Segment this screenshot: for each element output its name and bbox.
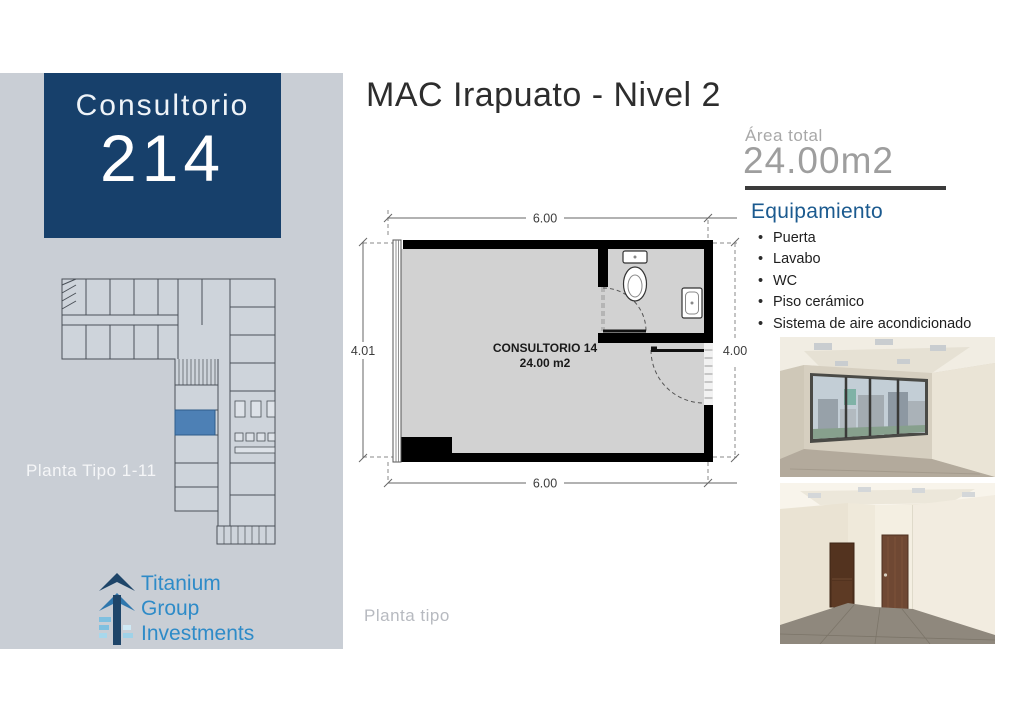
key-plan-caption: Planta Tipo 1-11 bbox=[26, 461, 157, 481]
wall-corner-block bbox=[397, 437, 452, 462]
logo-line-3: Investments bbox=[141, 621, 254, 646]
room-area-label: 24.00 m2 bbox=[520, 356, 571, 370]
dim-left-label: 4.01 bbox=[351, 344, 375, 358]
key-plan-drawing bbox=[52, 273, 322, 553]
plan-caption: Planta tipo bbox=[364, 606, 450, 626]
entry-door-opening bbox=[704, 343, 713, 405]
equipment-item: Sistema de aire acondicionado bbox=[758, 314, 971, 335]
page-title: MAC Irapuato - Nivel 2 bbox=[366, 76, 721, 115]
entry-door-handle bbox=[651, 347, 657, 351]
wall-right-upper bbox=[704, 240, 713, 343]
divider-rule bbox=[745, 186, 946, 190]
company-logo: Titanium Group Investments bbox=[97, 571, 254, 647]
wall-bottom bbox=[452, 453, 713, 462]
wood-door-1 bbox=[830, 543, 854, 607]
unit-badge: Consultorio 214 bbox=[44, 73, 281, 238]
unit-badge-label: Consultorio bbox=[76, 89, 250, 123]
area-total-value: 24.00m2 bbox=[743, 140, 894, 182]
equipment-item: Piso cerámico bbox=[758, 292, 971, 313]
equipment-heading: Equipamiento bbox=[751, 200, 883, 224]
bathroom-bottom-wall bbox=[598, 333, 713, 343]
dim-right-label: 4.00 bbox=[723, 344, 747, 358]
window-left bbox=[393, 240, 401, 462]
equipment-item: Puerta bbox=[758, 228, 971, 249]
company-logo-text: Titanium Group Investments bbox=[141, 571, 254, 646]
toilet-icon bbox=[623, 251, 647, 301]
bathroom-partition-wall bbox=[598, 249, 608, 287]
sink-icon bbox=[682, 288, 702, 318]
titanium-logo-icon bbox=[97, 571, 137, 647]
wall-top bbox=[403, 240, 713, 249]
dim-bottom-label: 6.00 bbox=[533, 477, 557, 491]
equipment-list: Puerta Lavabo WC Piso cerámico Sistema d… bbox=[758, 228, 971, 335]
equipment-item: WC bbox=[758, 271, 971, 292]
key-plan-highlighted-unit bbox=[175, 410, 215, 435]
sidebar-panel: Consultorio 214 bbox=[0, 73, 343, 649]
room-name-label: CONSULTORIO 14 bbox=[493, 341, 598, 355]
photo-office-window bbox=[780, 337, 995, 477]
logo-line-1: Titanium bbox=[141, 571, 254, 596]
dim-top-label: 6.00 bbox=[533, 212, 557, 226]
brochure-page: Consultorio 214 bbox=[0, 0, 1024, 724]
unit-badge-number: 214 bbox=[100, 125, 225, 191]
logo-line-2: Group bbox=[141, 596, 254, 621]
equipment-item: Lavabo bbox=[758, 249, 971, 270]
floor-plan-drawing: 6.00 6.00 4.01 4.00 CONSULTORIO 14 24.00… bbox=[340, 200, 750, 500]
wood-door-2 bbox=[882, 535, 908, 613]
photo-office-doors bbox=[780, 483, 995, 644]
